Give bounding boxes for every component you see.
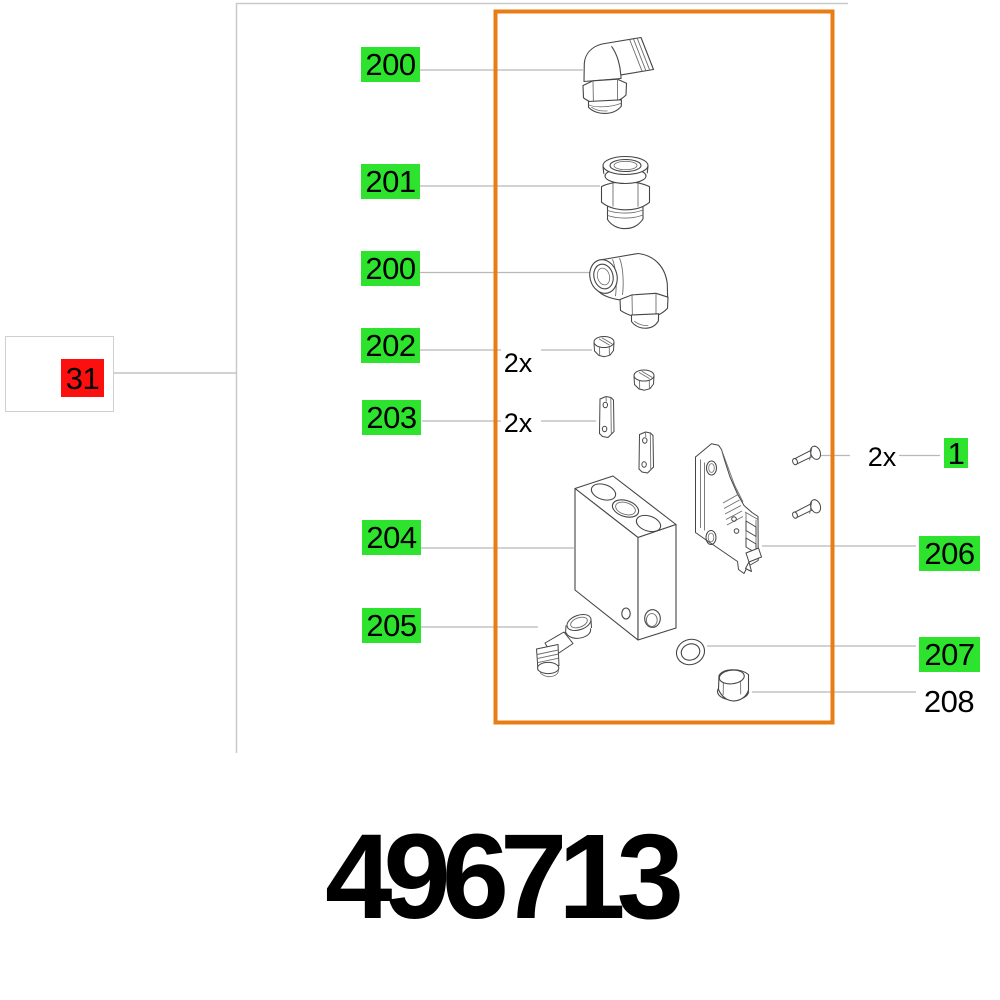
qty-203: 2x (502, 411, 534, 435)
callout-205[interactable]: 205 (362, 608, 421, 643)
callout-208: 208 (920, 686, 978, 716)
callout-31[interactable]: 31 (61, 359, 104, 397)
callout-206[interactable]: 206 (919, 536, 980, 571)
callout-202[interactable]: 202 (361, 328, 420, 363)
qty-202: 2x (502, 351, 534, 375)
part-200-elbow-fitting-middle (586, 254, 668, 329)
page-title-part-number: 496713 (0, 816, 1000, 966)
part-200-elbow-fitting-top (583, 38, 654, 114)
part-204-valve-block (575, 476, 676, 640)
callout-203[interactable]: 203 (362, 400, 421, 435)
part-207-sealing-ring (673, 635, 708, 668)
callout-201[interactable]: 201 (361, 164, 420, 199)
callout-204[interactable]: 204 (362, 520, 421, 555)
callout-1[interactable]: 1 (944, 438, 968, 468)
callout-200-middle[interactable]: 200 (361, 251, 420, 286)
qty-1: 2x (866, 445, 898, 469)
part-208-screw-plug (718, 669, 749, 701)
part-206-mounting-plate (696, 444, 762, 574)
part-202-union-nuts (594, 337, 654, 391)
exploded-parts-diagram-page: 31 200 201 200 202 203 204 205 2x 2x 2x … (0, 0, 1000, 1000)
callout-200-top[interactable]: 200 (361, 47, 420, 82)
drawing-frame (237, 4, 849, 754)
part-203-clamp-plates (600, 397, 654, 474)
callout-207[interactable]: 207 (919, 637, 980, 672)
part-205-elbow-fitting-small (537, 611, 594, 676)
part-1-pan-head-screws (792, 445, 823, 519)
part-201-straight-fitting (602, 157, 650, 229)
